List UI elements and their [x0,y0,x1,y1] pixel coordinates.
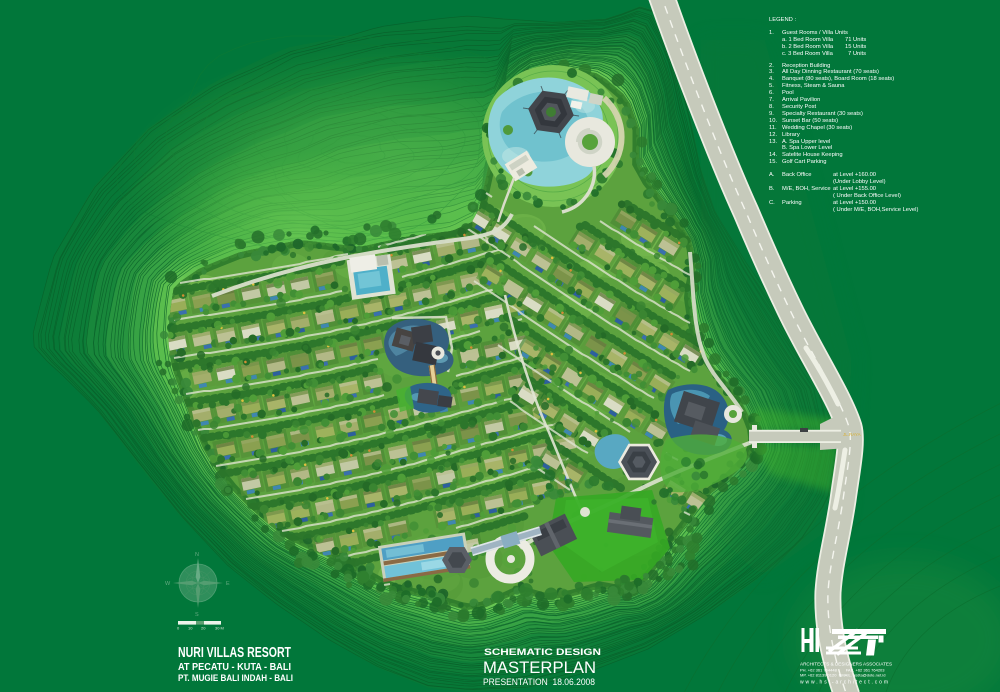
svg-text:W: W [165,581,171,587]
svg-text:www.hst-architect.com: www.hst-architect.com [800,680,890,686]
svg-text:AT PECATU - KUTA - BALI: AT PECATU - KUTA - BALI [178,662,291,673]
svg-text:NURI VILLAS RESORT: NURI VILLAS RESORT [178,645,291,661]
svg-text:PT. MUGIE BALI INDAH - BALI: PT. MUGIE BALI INDAH - BALI [178,673,293,683]
svg-text:10: 10 [188,626,193,631]
svg-text:SCHEMATIC DESIGN: SCHEMATIC DESIGN [484,647,601,658]
svg-text:ARCHITECTS & DESIGNERS ASSOCIA: ARCHITECTS & DESIGNERS ASSOCIATES [800,662,892,667]
svg-text:PRESENTATION 18.06.2008: PRESENTATION 18.06.2008 [483,677,595,687]
svg-text:20: 20 [201,626,206,631]
svg-text:MASTERPLAN: MASTERPLAN [483,659,596,677]
svg-text:N: N [195,552,199,558]
svg-text:E: E [226,581,230,587]
svg-text:JL.RAYA: JL.RAYA [843,432,861,437]
svg-text:30 M: 30 M [215,626,224,631]
svg-text:S: S [195,612,199,618]
svg-text:MP. +62 81139 0120 EMAIL. hsd: MP. +62 81139 0120 EMAIL. hsdta@dote.net… [800,673,885,678]
